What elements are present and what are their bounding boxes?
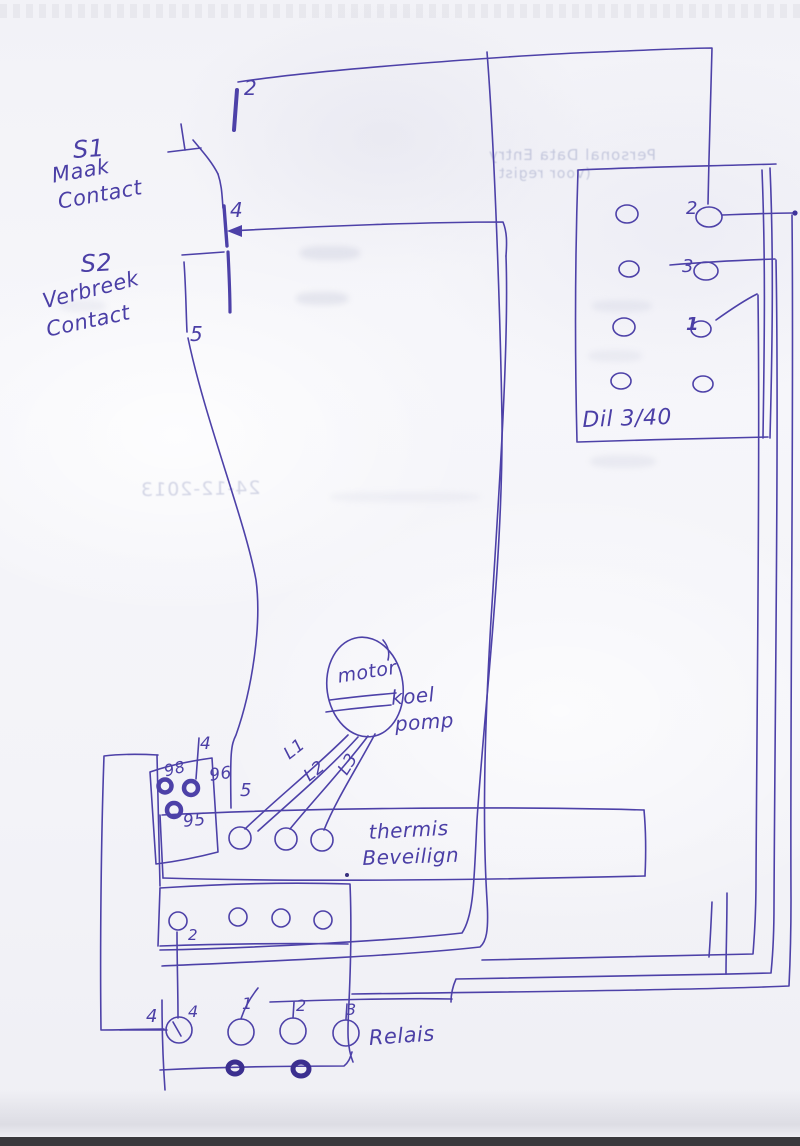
label-contactor-1: 1	[686, 314, 699, 335]
contactor-terminal-2	[696, 207, 722, 227]
relay-terminal-3	[333, 1020, 359, 1046]
switch-s2-symbol	[182, 252, 230, 332]
arrowhead	[227, 225, 242, 237]
aux-terminal	[272, 909, 290, 927]
label-relay-outer-4: 4	[146, 1006, 158, 1027]
wire-node4	[227, 222, 507, 256]
relay-terminal-1	[228, 1019, 254, 1045]
label-terminal-96: 96	[208, 763, 233, 786]
label-aux-2: 2	[188, 926, 198, 944]
label-contactor-3: 3	[682, 256, 694, 277]
contactor-terminal	[616, 205, 638, 223]
contactor-terminal-3	[694, 262, 718, 280]
label-node-4: 4	[230, 198, 243, 222]
label-terminal-95: 95	[182, 810, 207, 832]
contactor-terminal	[619, 261, 639, 277]
scan-edge-bar	[0, 1137, 800, 1146]
terminal-98	[159, 780, 172, 793]
overload-terminal-L1	[229, 827, 251, 849]
terminal-96	[184, 781, 198, 795]
label-koel: koel	[390, 682, 436, 710]
label-pomp: pomp	[394, 708, 455, 736]
aux-relay-box	[158, 883, 353, 1062]
label-beveilign: Beveilign	[362, 843, 459, 870]
label-node-2: 2	[244, 76, 257, 100]
switch-s1-symbol	[168, 124, 227, 246]
aux-terminal-2	[169, 912, 187, 930]
label-contactor-2: 2	[686, 198, 698, 219]
overload-terminal-L2	[275, 828, 297, 850]
contactor-terminal	[611, 373, 631, 389]
label-relais: Relais	[368, 1021, 436, 1050]
middle-vertical-wires	[160, 52, 507, 966]
label-overload-wire-4: 4	[200, 734, 211, 754]
contactor-box	[576, 164, 776, 442]
overload-terminal-L3	[311, 829, 333, 851]
aux-terminal	[314, 911, 332, 929]
label-node-5: 5	[190, 322, 203, 346]
terminal-95	[167, 803, 181, 817]
label-relay-2: 2	[296, 996, 307, 1015]
top-supply-wire	[234, 48, 712, 204]
overload-aux-contacts	[150, 738, 218, 864]
relay-terminal-2	[280, 1018, 306, 1044]
label-relay-3: 3	[346, 1000, 357, 1019]
label-relay-1: 1	[242, 994, 253, 1013]
label-thermis: thermis	[368, 816, 449, 844]
label-contactor-model: Dil 3/40	[582, 405, 672, 433]
contactor-terminal	[693, 376, 713, 392]
aux-terminal	[229, 908, 247, 926]
relay-coil-terminal	[293, 1062, 309, 1076]
scanned-wiring-sketch: Personal Data Entry (voor regist 24-12-2…	[0, 0, 800, 1146]
label-overload-wire-5: 5	[240, 780, 252, 801]
sketch-ink-layer	[0, 0, 800, 1146]
contactor-output-wires	[352, 210, 798, 1002]
label-relay-4: 4	[188, 1002, 199, 1021]
contactor-terminal	[613, 318, 635, 336]
left-return-loop	[101, 754, 164, 1030]
